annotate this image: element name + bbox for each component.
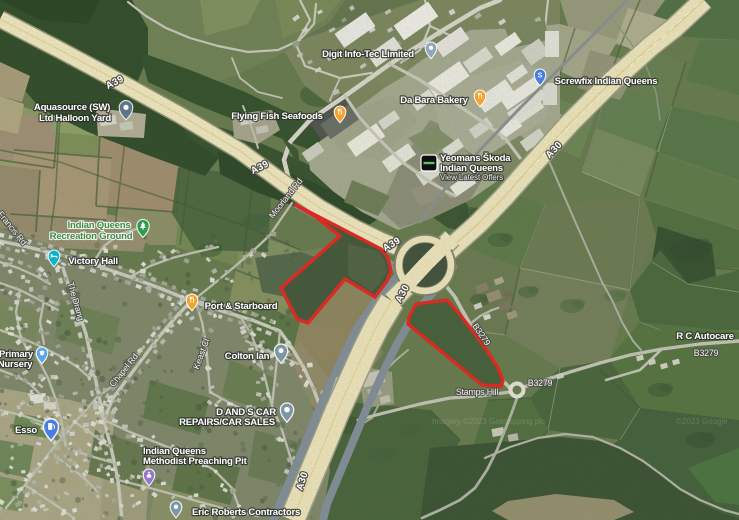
svg-text:REPAIRS/CAR SALES: REPAIRS/CAR SALES [179, 417, 276, 428]
svg-text:S: S [538, 72, 543, 79]
svg-text:Recreation Ground: Recreation Ground [50, 231, 133, 242]
svg-text:B3279: B3279 [694, 348, 719, 358]
svg-text:Ltd Halloon Yard: Ltd Halloon Yard [39, 113, 111, 124]
svg-text:Flying Fish Seafoods: Flying Fish Seafoods [231, 111, 322, 122]
svg-text:Digit Info-Tec Limited: Digit Info-Tec Limited [322, 49, 414, 60]
svg-text:View Latest Offers: View Latest Offers [440, 173, 503, 182]
svg-text:Da Bara Bakery: Da Bara Bakery [400, 95, 468, 106]
svg-text:Indian Queens: Indian Queens [68, 220, 131, 231]
svg-text:Eric Roberts Contractors: Eric Roberts Contractors [192, 507, 300, 518]
svg-text:Victory Hall: Victory Hall [68, 256, 118, 267]
svg-text:Port & Starboard: Port & Starboard [205, 301, 278, 312]
svg-text:Esso: Esso [15, 425, 37, 436]
svg-text:Screwfix Indian Queens: Screwfix Indian Queens [555, 76, 658, 87]
svg-text:B3279: B3279 [528, 378, 553, 388]
svg-text:R C Autocare: R C Autocare [676, 331, 733, 342]
svg-text:Colton Ian: Colton Ian [225, 351, 270, 362]
svg-text:Methodist Preaching Pit: Methodist Preaching Pit [143, 456, 248, 467]
svg-text:Stamps Hill: Stamps Hill [456, 387, 499, 397]
svg-text:Aquasource (SW): Aquasource (SW) [34, 102, 110, 113]
svg-text:Nursery: Nursery [0, 359, 33, 370]
